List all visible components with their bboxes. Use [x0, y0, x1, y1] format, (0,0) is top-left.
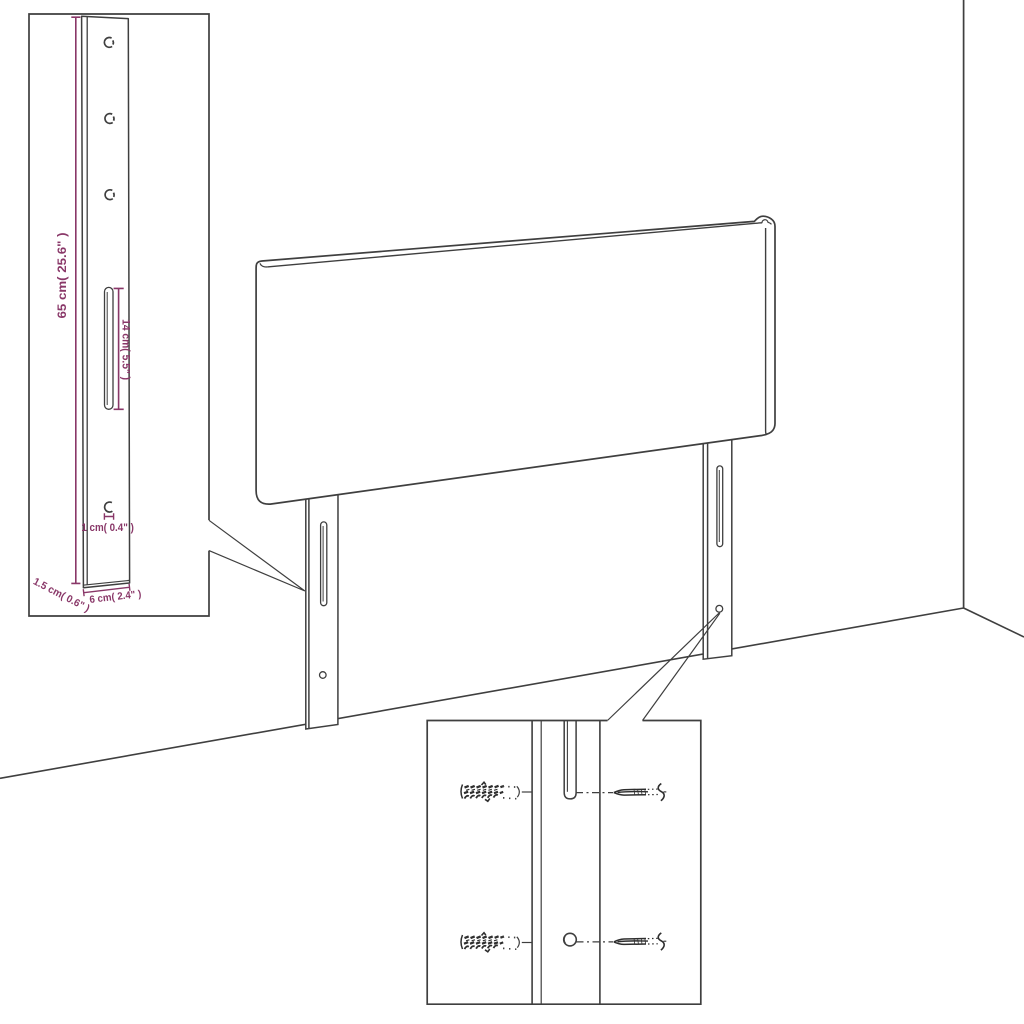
svg-text:65 cm( 25.6" ): 65 cm( 25.6" ) [55, 233, 69, 319]
svg-text:14 cm( 5.5" ): 14 cm( 5.5" ) [119, 319, 131, 380]
svg-text:1 cm( 0.4" ): 1 cm( 0.4" ) [81, 522, 134, 534]
